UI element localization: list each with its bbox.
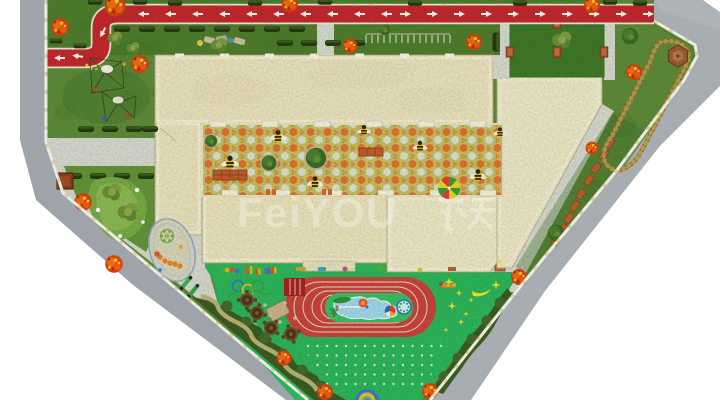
svg-text:FeiYOU: FeiYOU xyxy=(237,189,398,236)
